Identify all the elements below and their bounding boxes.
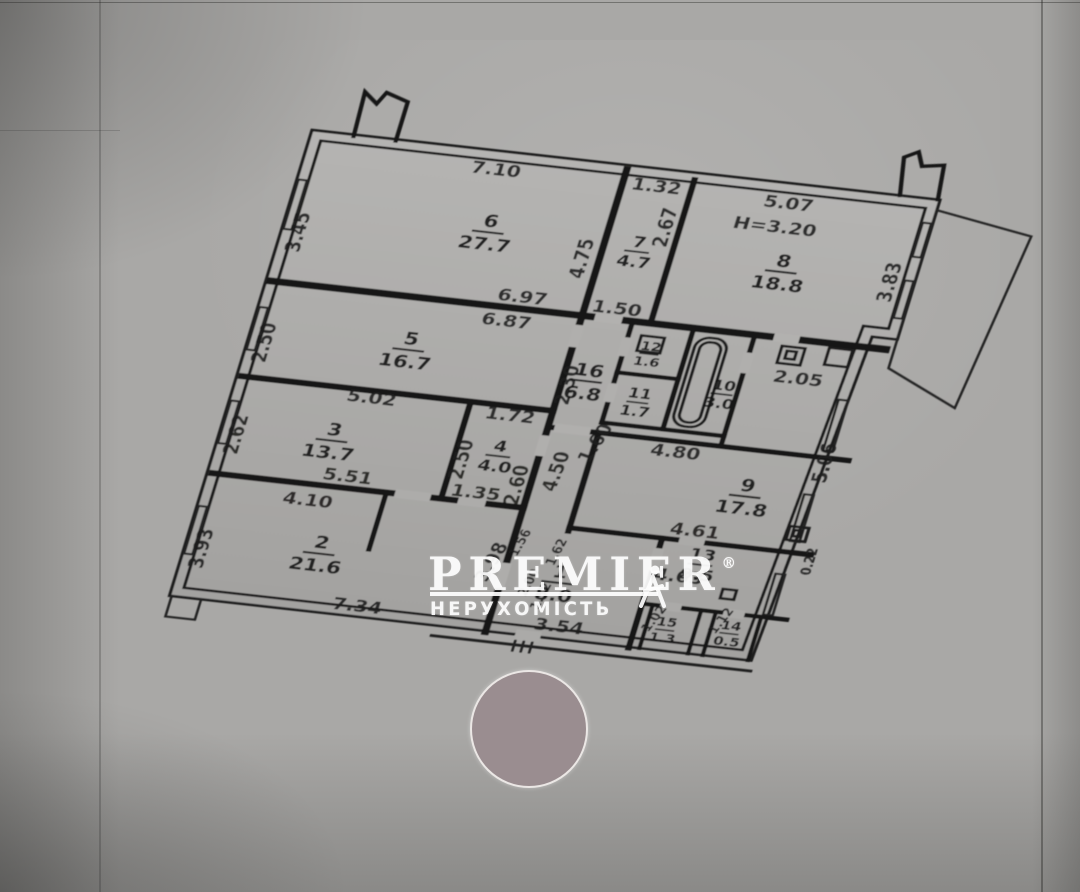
premier-watermark: PREMIER® НЕРУХОМІСТЬ — [428, 540, 696, 632]
svg-text:4.7: 4.7 — [614, 252, 653, 273]
chimney-left — [352, 90, 410, 141]
watermark-subtitle: НЕРУХОМІСТЬ — [430, 598, 612, 620]
svg-text:3.0: 3.0 — [701, 393, 736, 413]
svg-text:1.7: 1.7 — [617, 401, 652, 421]
svg-text:1.6: 1.6 — [631, 354, 661, 371]
svg-text:0.5: 0.5 — [711, 634, 741, 651]
watermark-divider — [430, 592, 658, 596]
chimney-right — [893, 150, 952, 199]
walking-person-icon — [634, 564, 670, 608]
scanned-floorplan-photo: 6 27.7 5 16.7 3 13.7 4 4.0 2 21.6 7 4.7 — [0, 0, 1080, 892]
svg-text:4.0: 4.0 — [475, 456, 514, 477]
registered-mark-icon: ® — [722, 554, 737, 572]
stamp-circle — [470, 670, 588, 788]
svg-text:11: 11 — [626, 384, 654, 403]
